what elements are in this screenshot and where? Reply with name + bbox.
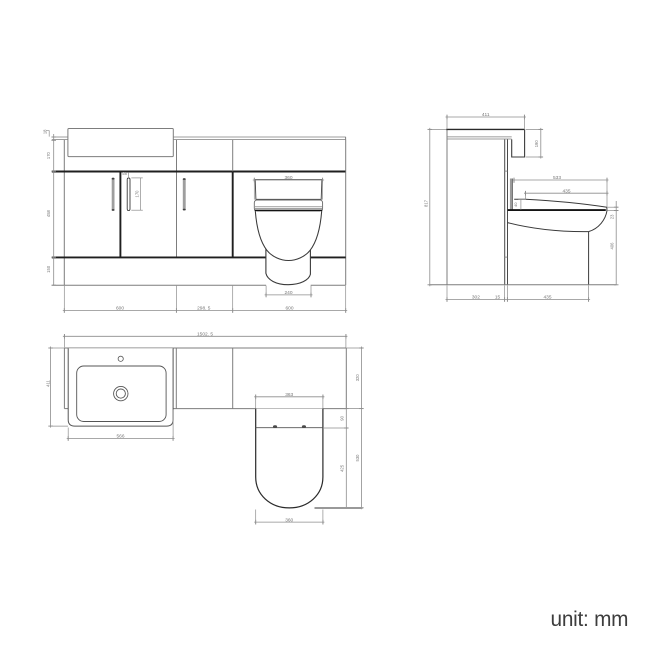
svg-text:320: 320 — [355, 374, 360, 382]
svg-text:170: 170 — [46, 151, 51, 159]
svg-text:533: 533 — [553, 175, 561, 181]
svg-text:58: 58 — [122, 171, 127, 176]
svg-text:458: 458 — [46, 209, 51, 217]
svg-text:530: 530 — [355, 454, 360, 462]
svg-text:23: 23 — [610, 214, 615, 219]
svg-text:170: 170 — [135, 190, 140, 198]
svg-text:435: 435 — [562, 188, 570, 194]
svg-text:unit: mm: unit: mm — [551, 608, 629, 631]
svg-text:817: 817 — [423, 199, 428, 207]
svg-text:406: 406 — [610, 242, 615, 250]
svg-text:40: 40 — [513, 202, 518, 207]
svg-text:150: 150 — [46, 265, 51, 273]
svg-text:360: 360 — [284, 175, 292, 181]
svg-text:15: 15 — [495, 295, 501, 301]
svg-text:435: 435 — [543, 295, 551, 301]
svg-text:302: 302 — [472, 295, 480, 301]
svg-text:18: 18 — [42, 129, 47, 134]
svg-text:600: 600 — [116, 306, 124, 312]
svg-text:411: 411 — [45, 379, 50, 386]
svg-text:425: 425 — [340, 464, 345, 472]
svg-text:1502. 5: 1502. 5 — [197, 331, 213, 337]
svg-text:411: 411 — [482, 112, 490, 118]
svg-text:363: 363 — [285, 392, 293, 398]
svg-text:360: 360 — [285, 517, 293, 523]
svg-text:90: 90 — [340, 415, 345, 420]
svg-text:298. 5: 298. 5 — [197, 306, 211, 312]
svg-text:600: 600 — [285, 306, 293, 312]
svg-text:240: 240 — [284, 290, 292, 296]
svg-text:566: 566 — [116, 434, 124, 440]
svg-text:190: 190 — [534, 140, 539, 148]
